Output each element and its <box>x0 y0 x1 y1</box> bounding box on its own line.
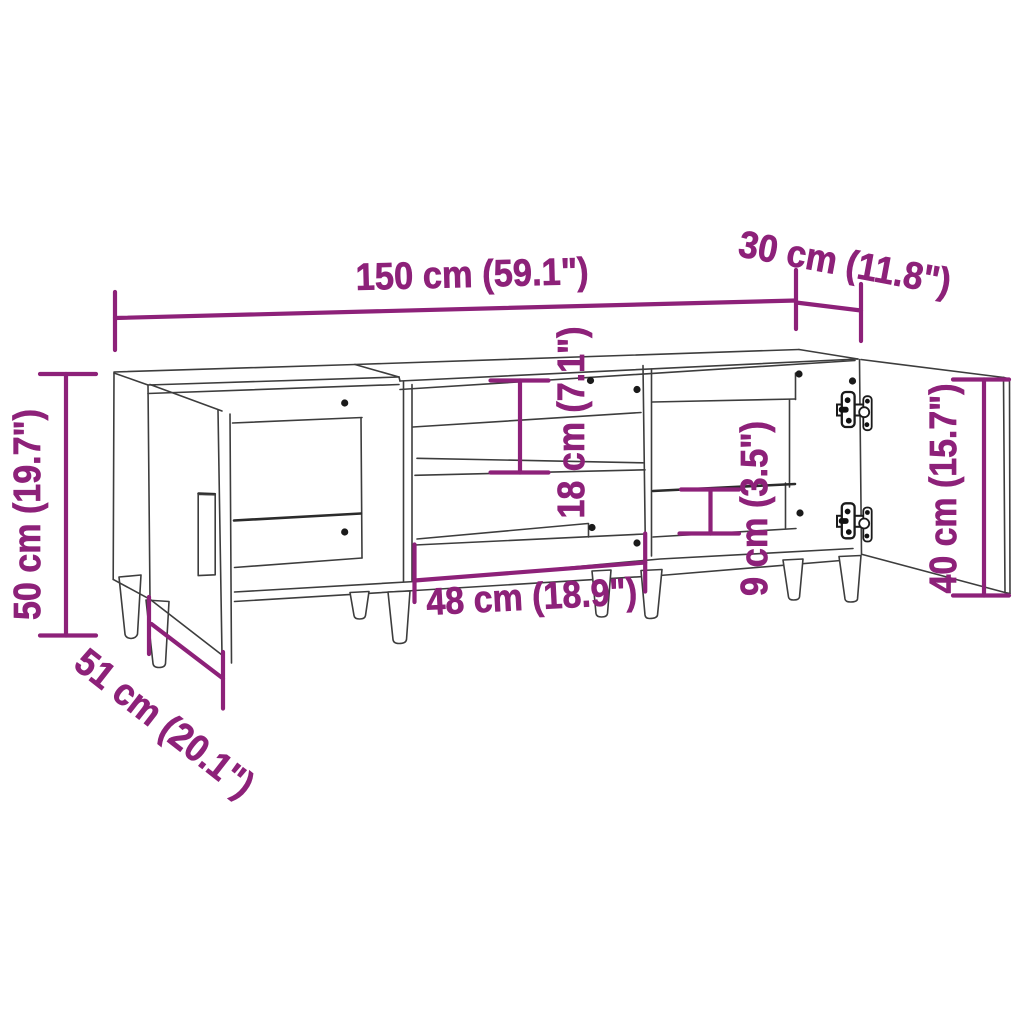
svg-text:30 cm (11.8"): 30 cm (11.8") <box>735 224 954 304</box>
svg-text:9 cm (3.5"): 9 cm (3.5") <box>734 421 776 596</box>
svg-text:40 cm (15.7"): 40 cm (15.7") <box>923 384 965 594</box>
svg-text:150 cm (59.1"): 150 cm (59.1") <box>355 251 589 299</box>
svg-text:18 cm (7.1"): 18 cm (7.1") <box>551 327 593 519</box>
svg-text:50 cm (19.7"): 50 cm (19.7") <box>7 409 49 620</box>
